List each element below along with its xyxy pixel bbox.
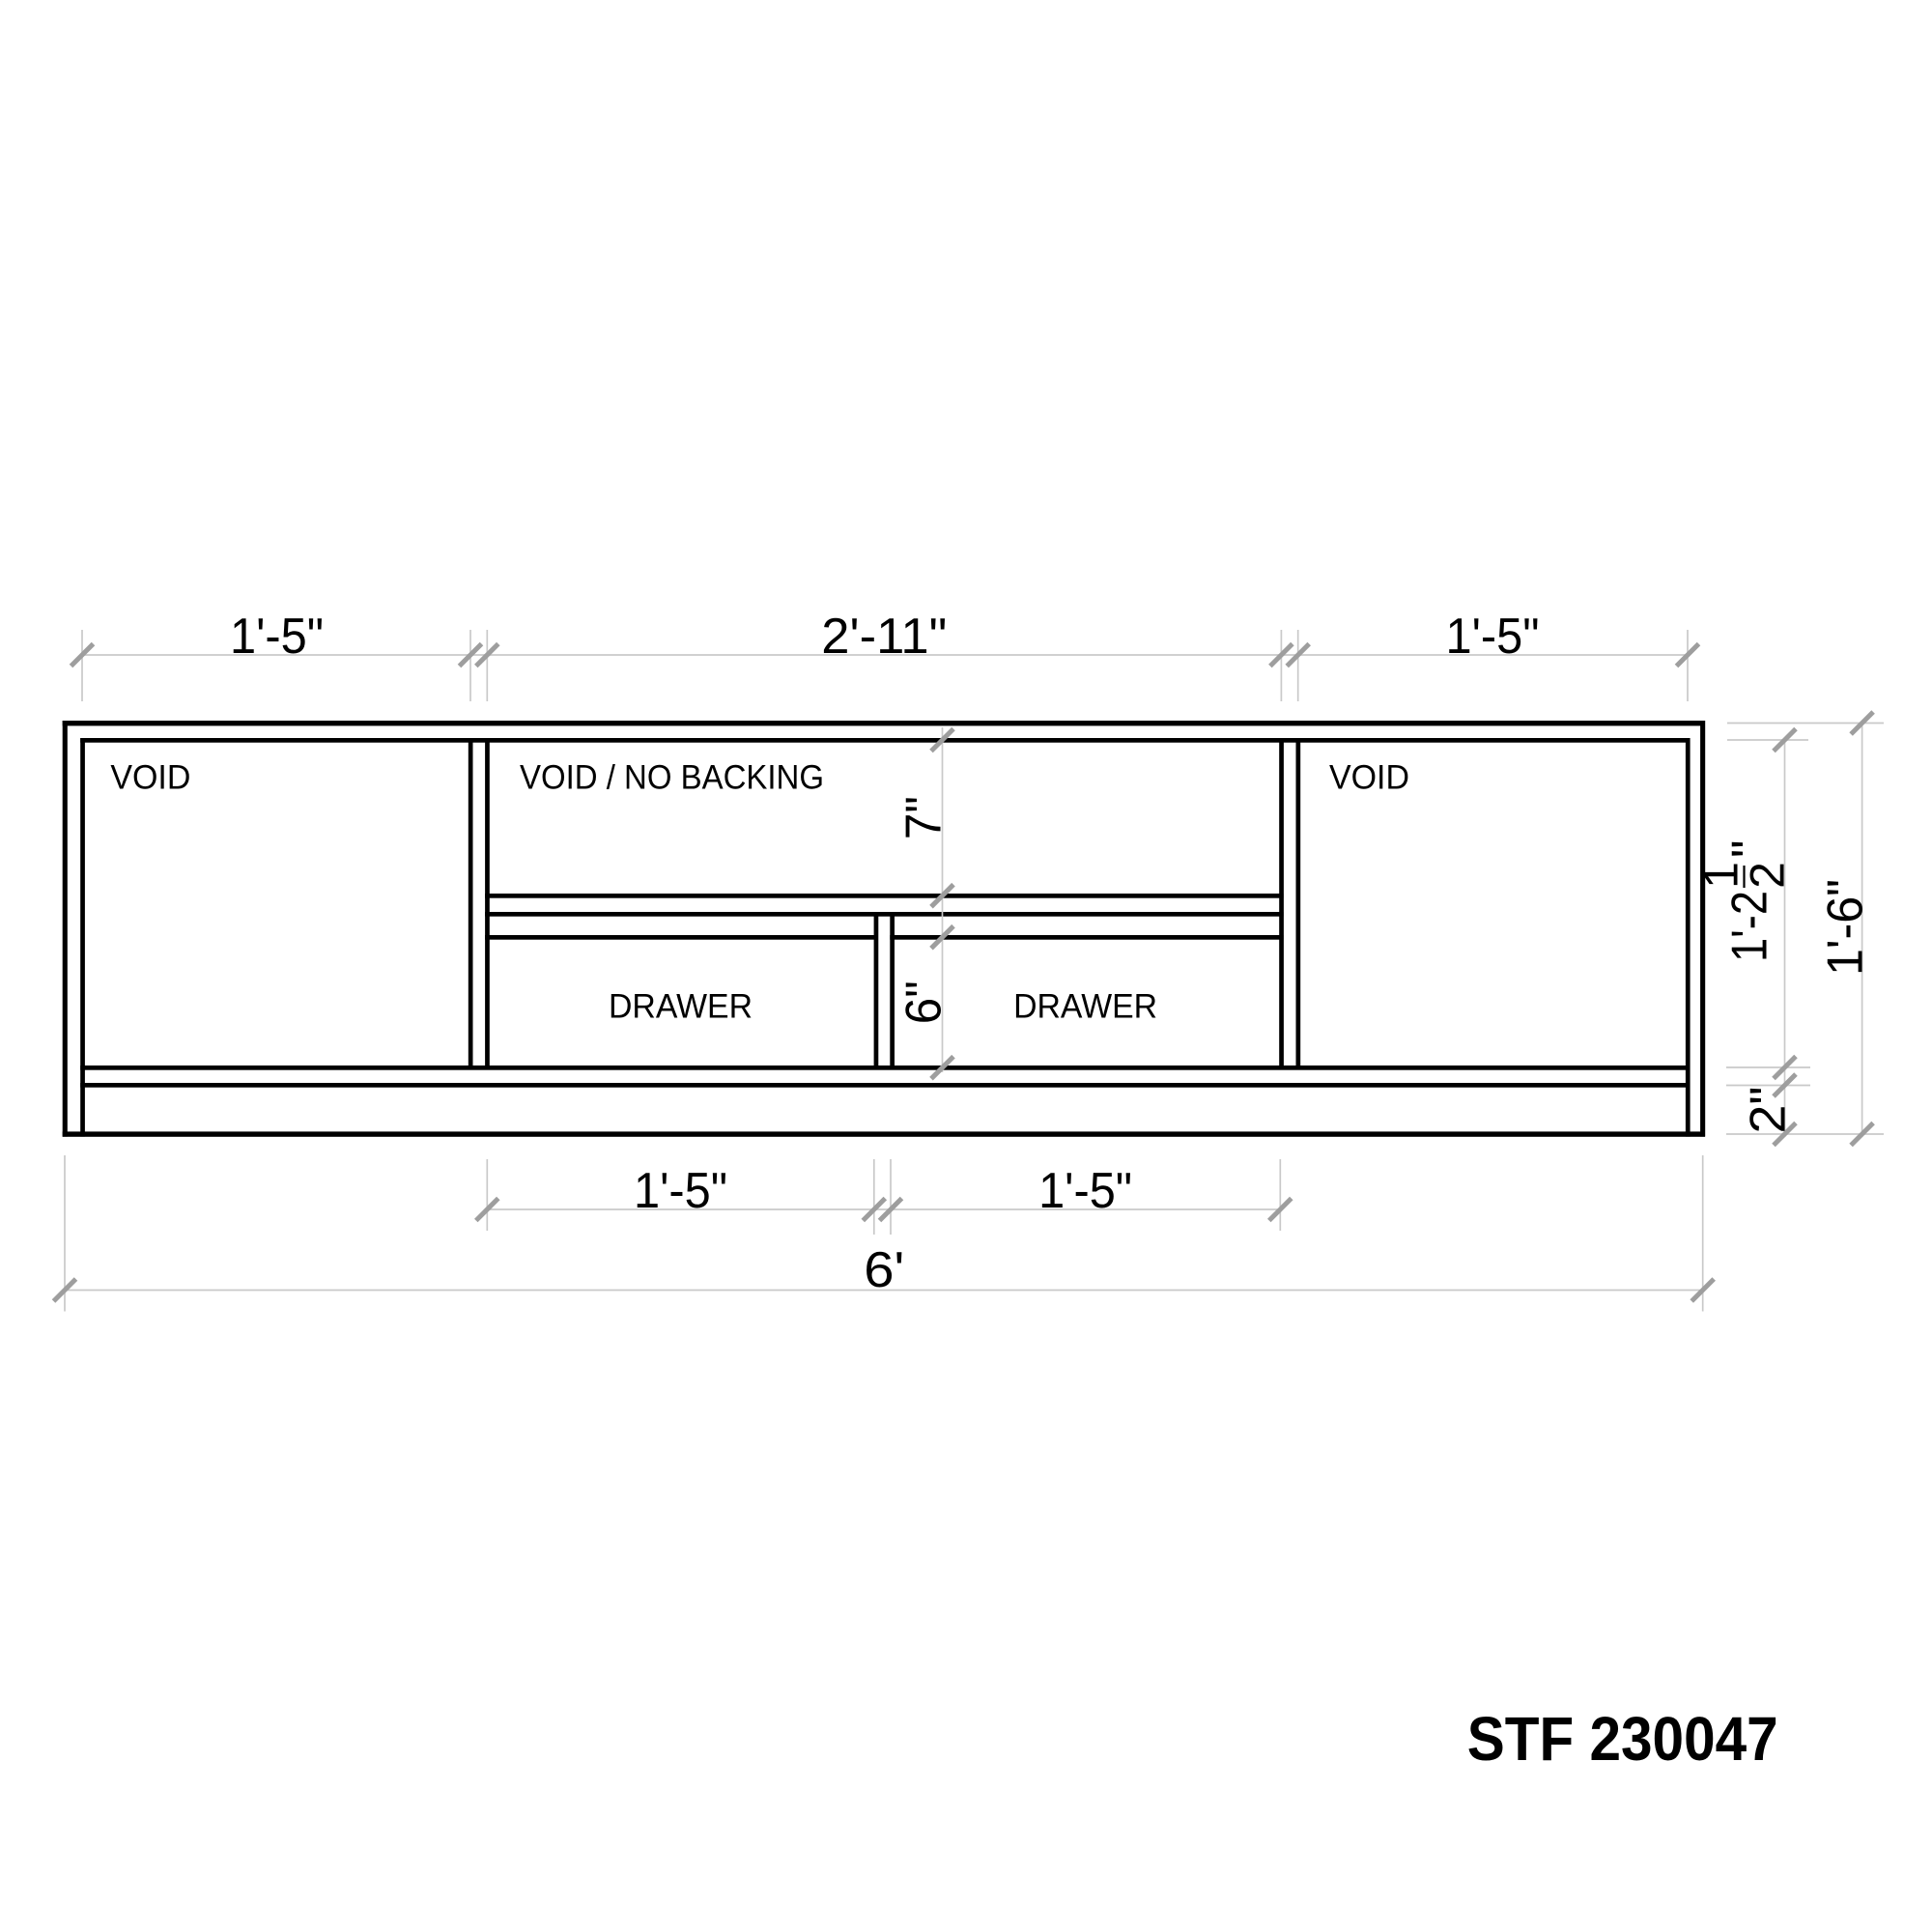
svg-text:STF 230047: STF 230047 [1467, 1704, 1778, 1774]
svg-text:VOID: VOID [110, 759, 190, 797]
svg-text:1'-5": 1'-5" [1038, 1163, 1132, 1219]
svg-text:7": 7" [896, 796, 952, 839]
svg-text:": " [1722, 840, 1778, 858]
svg-text:2: 2 [1741, 862, 1795, 889]
svg-text:1'-6": 1'-6" [1818, 879, 1874, 976]
svg-text:VOID: VOID [1329, 759, 1409, 797]
svg-text:1'-5": 1'-5" [634, 1163, 727, 1219]
svg-text:6": 6" [896, 980, 952, 1024]
svg-text:DRAWER: DRAWER [609, 988, 753, 1026]
svg-text:DRAWER: DRAWER [1013, 988, 1157, 1026]
svg-text:2'-11": 2'-11" [821, 609, 947, 665]
svg-text:6': 6' [864, 1242, 904, 1298]
svg-text:VOID / NO BACKING: VOID / NO BACKING [520, 759, 824, 797]
svg-text:2": 2" [1740, 1087, 1796, 1134]
svg-text:1'-2: 1'-2 [1722, 891, 1778, 962]
svg-text:1'-5": 1'-5" [230, 609, 324, 665]
svg-text:1'-5": 1'-5" [1446, 609, 1540, 665]
